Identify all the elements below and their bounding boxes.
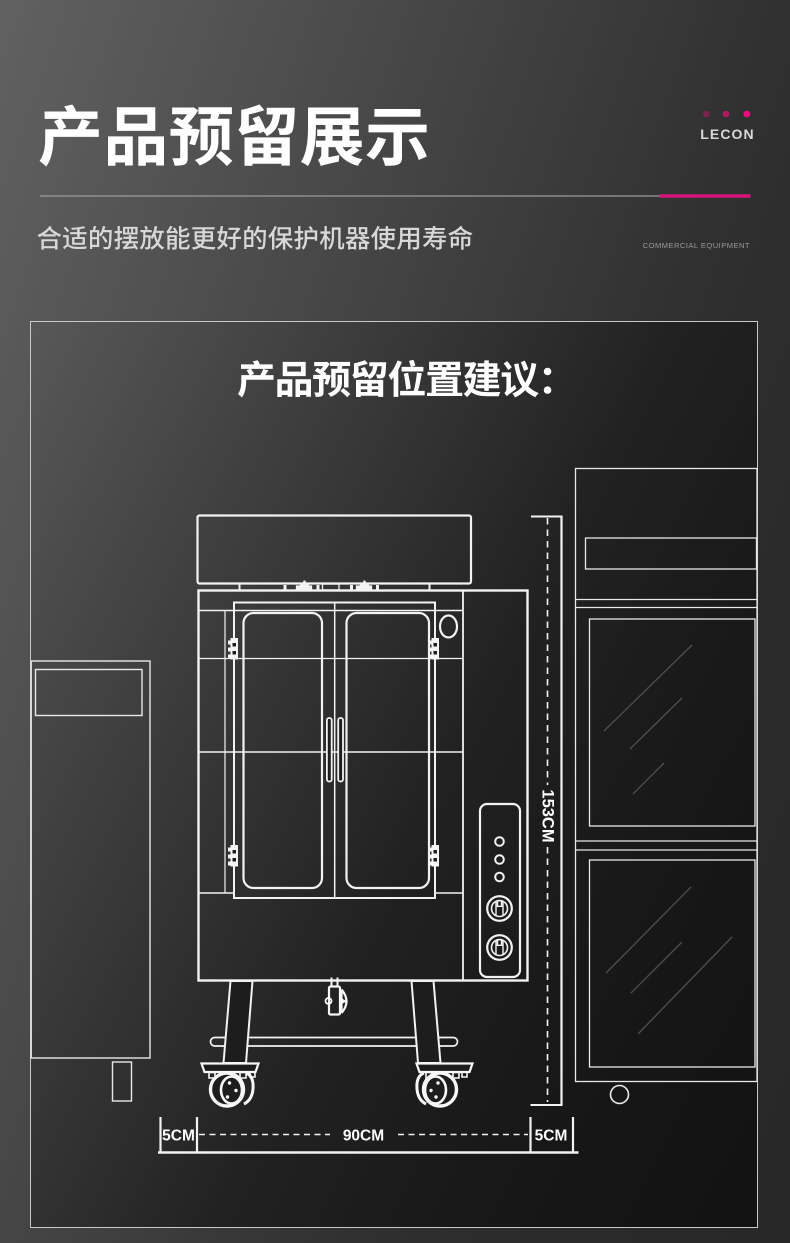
svg-text:5CM: 5CM xyxy=(535,1128,568,1145)
svg-text:5CM: 5CM xyxy=(162,1128,195,1145)
svg-text:90CM: 90CM xyxy=(343,1128,384,1145)
svg-text:COMMERCIAL EQUIPMENT: COMMERCIAL EQUIPMENT xyxy=(643,241,750,250)
svg-text:LECON: LECON xyxy=(700,126,755,142)
svg-text:153CM: 153CM xyxy=(539,789,557,842)
